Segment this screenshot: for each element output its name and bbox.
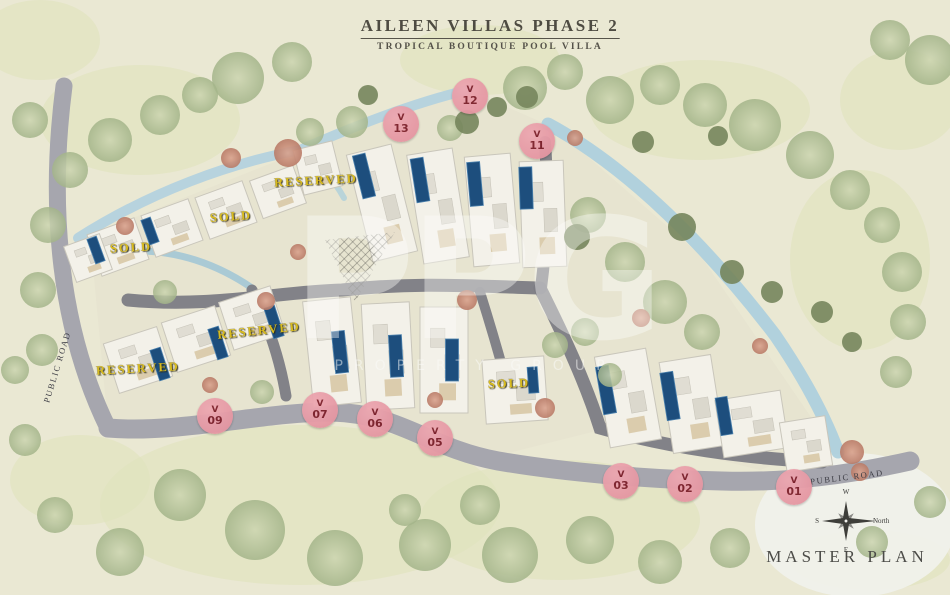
- pool: [388, 335, 403, 378]
- villa-marker-number: 03: [613, 480, 628, 492]
- villa-marker-v06[interactable]: V 06: [357, 401, 393, 437]
- villa-marker-v12[interactable]: V 12: [452, 78, 488, 114]
- pool: [446, 339, 459, 381]
- villa-marker-v13[interactable]: V 13: [383, 106, 419, 142]
- villa-marker-v05[interactable]: V 05: [417, 420, 453, 456]
- status-label: SOLD: [110, 239, 153, 256]
- status-label: SOLD: [210, 208, 253, 226]
- villa-marker-number: 11: [529, 140, 544, 152]
- page-subtitle: TROPICAL BOUTIQUE POOL VILLA: [361, 42, 620, 52]
- villa-marker-number: 05: [427, 437, 442, 449]
- villa-marker-v03[interactable]: V 03: [603, 463, 639, 499]
- villa-footprint: [779, 416, 832, 473]
- villa-footprint: [420, 307, 468, 413]
- compass-star-icon: [812, 493, 880, 549]
- villa-marker-v09[interactable]: V 09: [197, 398, 233, 434]
- villa-marker-v01[interactable]: V 01: [776, 469, 812, 505]
- villa-marker-v11[interactable]: V 11: [519, 123, 555, 159]
- villa-footprint: [361, 302, 414, 410]
- villa-marker-number: 12: [462, 95, 477, 107]
- villa-marker-number: 13: [393, 123, 408, 135]
- villa-marker-v02[interactable]: V 02: [667, 466, 703, 502]
- masterplan-label: MASTER PLAN: [766, 547, 928, 567]
- status-label: SOLD: [488, 376, 531, 392]
- villa-marker-v07[interactable]: V 07: [302, 392, 338, 428]
- page-title: AILEEN VILLAS PHASE 2: [361, 16, 620, 39]
- pool: [519, 167, 533, 209]
- compass-label-right: North: [873, 517, 889, 525]
- master-plan-canvas: PPG PROPERTY GROUP AILEEN VILLAS PHASE 2…: [0, 0, 950, 595]
- villa-marker-number: 01: [786, 486, 801, 498]
- compass-label-top: W: [843, 488, 850, 496]
- title-block: AILEEN VILLAS PHASE 2 TROPICAL BOUTIQUE …: [361, 16, 620, 52]
- villa-marker-number: 07: [312, 409, 327, 421]
- villa-marker-number: 02: [677, 483, 692, 495]
- villa-marker-number: 09: [207, 415, 222, 427]
- compass-label-left: S: [815, 517, 819, 525]
- villa-marker-number: 06: [367, 418, 382, 430]
